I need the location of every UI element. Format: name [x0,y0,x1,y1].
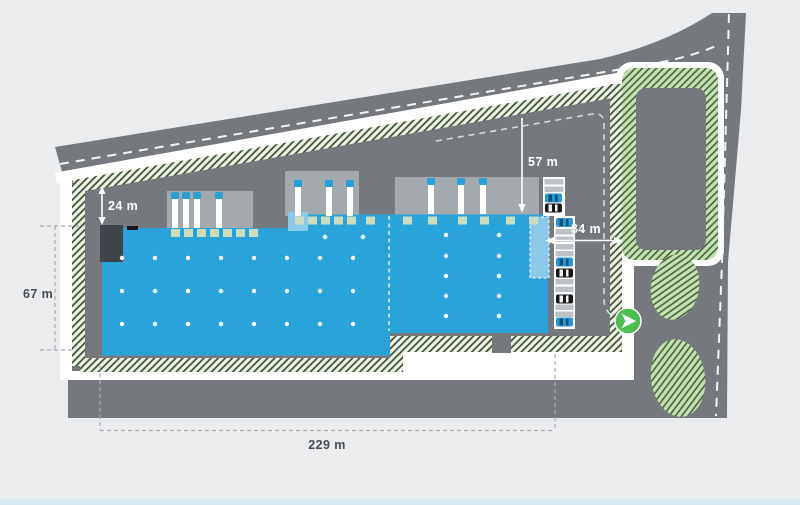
dim-label-34m: 34 m [571,222,601,236]
car-icon [545,194,562,203]
dim-label-24m: 24 m [108,199,138,213]
truck-icon [457,178,465,214]
walkway-stub [492,336,511,353]
apron-west [167,191,253,229]
frame-bottom-strip [0,499,800,505]
site-plan-canvas: 24 m 57 m 34 m 67 m 229 m [0,0,800,505]
car-icon [556,269,573,278]
car-icon [556,295,573,304]
truck-icon [346,180,354,216]
entrance-marker-icon[interactable] [615,308,641,334]
truck-icon [294,180,302,216]
landscape-band-right [610,84,622,346]
truck-icon [427,178,435,214]
dim-label-67m: 67 m [23,287,53,301]
truck-icon [215,192,223,228]
dim-label-57m: 57 m [528,155,558,169]
parking-strip-north [543,177,565,216]
truck-icon [171,192,179,228]
truck-icon [325,180,333,216]
car-icon [556,258,573,267]
car-icon [545,204,562,213]
truck-icon [193,192,201,228]
building-annex-dark [100,225,123,262]
building-office-zone [530,217,549,278]
verge-bottom-right [398,352,634,380]
island-center [636,88,706,250]
car-icon [556,318,573,327]
building-door-dark [127,226,138,230]
landscape-band-step [390,336,403,372]
dim-label-229m: 229 m [308,438,345,452]
truck-icon [479,178,487,214]
site-plan-svg: 24 m 57 m 34 m 67 m 229 m [0,0,800,505]
apron-east [395,177,539,215]
truck-icon [182,192,190,228]
